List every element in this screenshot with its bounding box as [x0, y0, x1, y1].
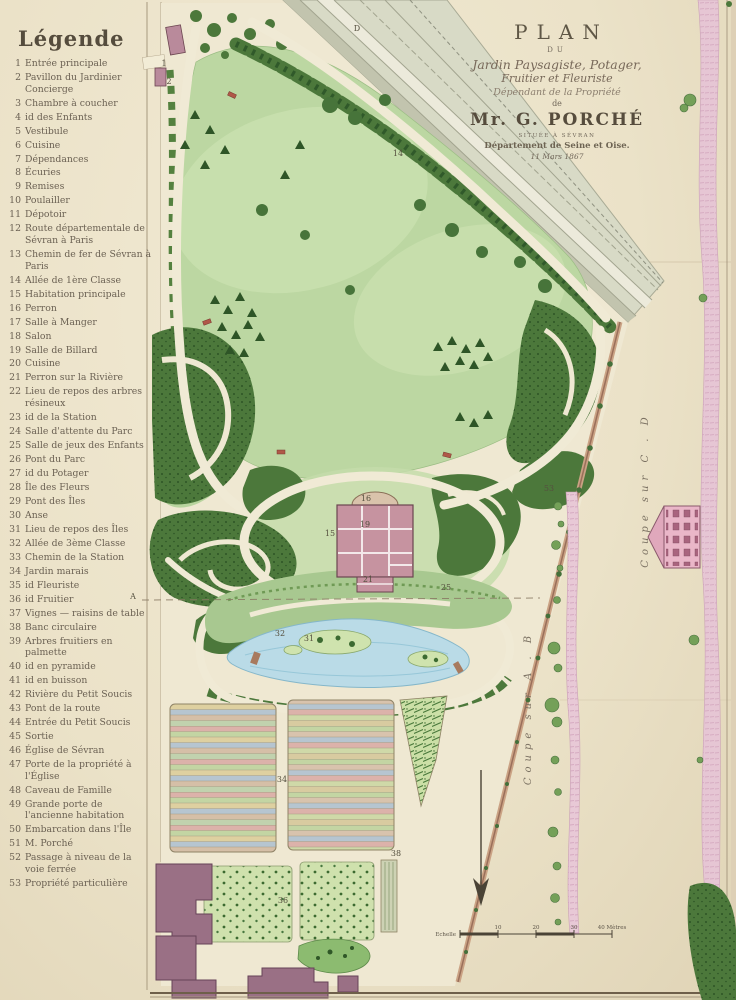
legend-item-number: 17: [6, 317, 21, 329]
legend-item: 51M. Porché: [6, 838, 152, 850]
legend-item-number: 9: [6, 181, 21, 193]
legend-item-label: Chemin de fer de Sévran à Paris: [25, 249, 152, 272]
legend-item-label: Poulailler: [25, 195, 152, 207]
legend-item-label: Pont des Îles: [25, 496, 152, 508]
legend-item: 45Sortie: [6, 731, 152, 743]
legend-item-label: Dépendances: [25, 154, 152, 166]
map-number-label: 19: [360, 520, 370, 529]
island: [408, 651, 448, 667]
legend-item-label: id Fruitier: [25, 594, 152, 606]
legend-item-label: Salle de Billard: [25, 345, 152, 357]
legend-item-label: Remises: [25, 181, 152, 193]
legend-item-label: id Fleuriste: [25, 580, 152, 592]
legend-item-label: Perron sur la Rivière: [25, 372, 152, 384]
legend-item: 9Remises: [6, 181, 152, 193]
legend-item-number: 43: [6, 703, 21, 715]
legend-item: 49Grande porte de l'ancienne habitation: [6, 799, 152, 822]
scanned-garden-plan: { "legend": { "heading": "Légende", "ite…: [0, 0, 736, 1000]
legend-item-number: 25: [6, 440, 21, 452]
legend-item: 38Banc circulaire: [6, 622, 152, 634]
legend-item: 16Perron: [6, 303, 152, 315]
legend-item-number: 39: [6, 636, 21, 659]
legend-item-label: Île des Fleurs: [25, 482, 152, 494]
legend-item: 11Dépotoir: [6, 209, 152, 221]
scale-tick-labels: 10203040 Mètres: [495, 924, 627, 931]
map-number-label: 34: [277, 775, 287, 784]
legend-item-number: 8: [6, 167, 21, 179]
kitchen-garden-plot: [288, 700, 394, 850]
legend-item-label: Église de Sévran: [25, 745, 152, 757]
map-number-label: 38: [391, 849, 401, 858]
plan-title: PLAN: [448, 20, 666, 44]
legend-item: 18Salon: [6, 331, 152, 343]
map-number-label: 32: [275, 629, 285, 638]
legend-item-number: 6: [6, 140, 21, 152]
legend-item: 15Habitation principale: [6, 289, 152, 301]
map-number-label: 15: [325, 529, 335, 538]
legend-item: 31Lieu de repos des Îles: [6, 524, 152, 536]
legend-item-number: 26: [6, 454, 21, 466]
legend-item: 35id Fleuriste: [6, 580, 152, 592]
legend-item-label: Pavillon du Jardinier Concierge: [25, 72, 152, 95]
legend-item-label: Entrée du Petit Soucis: [25, 717, 152, 729]
legend-item-label: Allée de 3ème Classe: [25, 538, 152, 550]
legend-item: 52Passage à niveau de la voie ferrée: [6, 852, 152, 875]
legend-item-label: Pont du Parc: [25, 454, 152, 466]
legend-item: 53Propriété particulière: [6, 878, 152, 890]
legend-item: 24Salle d'attente du Parc: [6, 426, 152, 438]
legend-item: 32Allée de 3ème Classe: [6, 538, 152, 550]
title-department: Département de Seine et Oise.: [448, 141, 666, 151]
legend-item-label: M. Porché: [25, 838, 152, 850]
scale-tick-label: 40 Mètres: [598, 924, 627, 931]
map-number-label: 1: [161, 59, 166, 68]
legend-item-number: 34: [6, 566, 21, 578]
legend-item-label: Chemin de la Station: [25, 552, 152, 564]
palmette-strip: [381, 860, 397, 932]
legend-item-number: 37: [6, 608, 21, 620]
legend-item-number: 24: [6, 426, 21, 438]
legend-item: 30Anse: [6, 510, 152, 522]
legend-item: 36id Fruitier: [6, 594, 152, 606]
map-number-label: 25: [441, 583, 451, 592]
legend: Légende 1Entrée principale2Pavillon du J…: [6, 26, 152, 892]
legend-item: 34Jardin marais: [6, 566, 152, 578]
legend-item-number: 36: [6, 594, 21, 606]
legend-item: 47Porte de la propriété à l'Église: [6, 759, 152, 782]
legend-item: 4id des Enfants: [6, 112, 152, 124]
legend-item: 39Arbres fruitiers en palmette: [6, 636, 152, 659]
legend-item-number: 14: [6, 275, 21, 287]
legend-item-number: 53: [6, 878, 21, 890]
legend-item-number: 42: [6, 689, 21, 701]
legend-item-label: Lieu de repos des Îles: [25, 524, 152, 536]
legend-item: 44Entrée du Petit Soucis: [6, 717, 152, 729]
legend-item: 27id du Potager: [6, 468, 152, 480]
legend-item-number: 40: [6, 661, 21, 673]
legend-item-label: Vignes — raisins de table: [25, 608, 152, 620]
legend-item-label: Salle à Manger: [25, 317, 152, 329]
legend-item-label: id des Enfants: [25, 112, 152, 124]
legend-item: 19Salle de Billard: [6, 345, 152, 357]
legend-item: 25Salle de jeux des Enfants: [6, 440, 152, 452]
legend-item-number: 46: [6, 745, 21, 757]
legend-item-number: 52: [6, 852, 21, 875]
legend-item-number: 27: [6, 468, 21, 480]
legend-item-label: id de la Station: [25, 412, 152, 424]
legend-heading: Légende: [18, 26, 152, 51]
legend-item: 41id en buisson: [6, 675, 152, 687]
map-number-label: 53: [544, 484, 554, 493]
legend-item-label: Salle d'attente du Parc: [25, 426, 152, 438]
legend-item-number: 50: [6, 824, 21, 836]
legend-item-number: 49: [6, 799, 21, 822]
legend-item-number: 30: [6, 510, 21, 522]
legend-item-number: 15: [6, 289, 21, 301]
legend-item-number: 11: [6, 209, 21, 221]
legend-item: 48Caveau de Famille: [6, 785, 152, 797]
legend-item-label: Cuisine: [25, 358, 152, 370]
legend-item-label: Jardin marais: [25, 566, 152, 578]
legend-item: 23id de la Station: [6, 412, 152, 424]
legend-item-label: Porte de la propriété à l'Église: [25, 759, 152, 782]
legend-item-label: Entrée principale: [25, 58, 152, 70]
scale-tick-label: 10: [495, 925, 502, 931]
legend-item-label: Lieu de repos des arbres résineux: [25, 386, 152, 409]
legend-item: 13Chemin de fer de Sévran à Paris: [6, 249, 152, 272]
orchard-plot: [300, 862, 374, 940]
map-number-label: 31: [304, 634, 314, 643]
title-de: de: [448, 99, 666, 108]
legend-item-label: Vestibule: [25, 126, 152, 138]
title-garden-line: Jardin Paysagiste, Potager,: [448, 57, 666, 72]
legend-item-number: 33: [6, 552, 21, 564]
legend-item-number: 4: [6, 112, 21, 124]
legend-item-number: 29: [6, 496, 21, 508]
title-block: PLAN DU Jardin Paysagiste, Potager, Frui…: [448, 20, 666, 161]
legend-item: 5Vestibule: [6, 126, 152, 138]
legend-item: 37Vignes — raisins de table: [6, 608, 152, 620]
legend-item-number: 10: [6, 195, 21, 207]
legend-item: 21Perron sur la Rivière: [6, 372, 152, 384]
legend-item-number: 38: [6, 622, 21, 634]
legend-item-number: 23: [6, 412, 21, 424]
legend-item-number: 12: [6, 223, 21, 246]
legend-item: 6Cuisine: [6, 140, 152, 152]
legend-item-label: Grande porte de l'ancienne habitation: [25, 799, 152, 822]
legend-item-number: 5: [6, 126, 21, 138]
title-fruit-line: Fruitier et Fleuriste: [448, 72, 666, 85]
legend-item: 7Dépendances: [6, 154, 152, 166]
legend-item-number: 28: [6, 482, 21, 494]
title-date: 11 Mars 1867: [448, 152, 666, 161]
scale-tick-label: 20: [533, 925, 540, 931]
legend-item-number: 3: [6, 98, 21, 110]
islet: [284, 646, 302, 655]
legend-item-label: Salle de jeux des Enfants: [25, 440, 152, 452]
legend-item: 26Pont du Parc: [6, 454, 152, 466]
legend-item: 28Île des Fleurs: [6, 482, 152, 494]
map-number-label: 36: [278, 896, 288, 905]
legend-item-number: 45: [6, 731, 21, 743]
bottom-road: [150, 993, 736, 997]
legend-item-number: 48: [6, 785, 21, 797]
legend-item: 29Pont des Îles: [6, 496, 152, 508]
legend-item: 14Allée de 1ère Classe: [6, 275, 152, 287]
legend-item-number: 41: [6, 675, 21, 687]
legend-item-number: 31: [6, 524, 21, 536]
legend-item-label: Pont de la route: [25, 703, 152, 715]
legend-item-label: Écuries: [25, 167, 152, 179]
legend-item: 12Route départementale de Sévran à Paris: [6, 223, 152, 246]
legend-item-number: 21: [6, 372, 21, 384]
map-number-label: 2: [166, 77, 171, 86]
main-house: [337, 492, 413, 592]
legend-item-label: id en pyramide: [25, 661, 152, 673]
legend-item-label: id en buisson: [25, 675, 152, 687]
legend-item: 20Cuisine: [6, 358, 152, 370]
legend-item-number: 2: [6, 72, 21, 95]
legend-item: 17Salle à Manger: [6, 317, 152, 329]
legend-item-label: Cuisine: [25, 140, 152, 152]
map-number-label: 16: [361, 494, 371, 503]
legend-item: 33Chemin de la Station: [6, 552, 152, 564]
legend-item-label: Rivière du Petit Soucis: [25, 689, 152, 701]
section-cd-label: Coupe sur C . D: [640, 412, 651, 567]
legend-item: 1Entrée principale: [6, 58, 152, 70]
legend-item-label: Passage à niveau de la voie ferrée: [25, 852, 152, 875]
legend-item: 10Poulailler: [6, 195, 152, 207]
legend-item-number: 35: [6, 580, 21, 592]
legend-item-label: id du Potager: [25, 468, 152, 480]
plan-title-du: DU: [448, 46, 666, 54]
map-number-label: D: [354, 24, 360, 33]
legend-item-label: Perron: [25, 303, 152, 315]
legend-item-number: 22: [6, 386, 21, 409]
legend-item: 22Lieu de repos des arbres résineux: [6, 386, 152, 409]
legend-item: 46Église de Sévran: [6, 745, 152, 757]
legend-item-label: Embarcation dans l'Île: [25, 824, 152, 836]
title-depend-line: Dépendant de la Propriété: [448, 87, 666, 98]
legend-item-number: 19: [6, 345, 21, 357]
legend-item-number: 20: [6, 358, 21, 370]
legend-item-label: Caveau de Famille: [25, 785, 152, 797]
legend-item: 43Pont de la route: [6, 703, 152, 715]
legend-item-label: Salon: [25, 331, 152, 343]
legend-item: 2Pavillon du Jardinier Concierge: [6, 72, 152, 95]
legend-item-label: Route départementale de Sévran à Paris: [25, 223, 152, 246]
map-number-label: 21: [363, 575, 373, 584]
legend-item-number: 32: [6, 538, 21, 550]
section-ab-label: Coupe sur A . B: [523, 631, 534, 785]
legend-item-number: 13: [6, 249, 21, 272]
legend-item: 42Rivière du Petit Soucis: [6, 689, 152, 701]
house-elevation: [648, 506, 700, 568]
legend-item-label: Arbres fruitiers en palmette: [25, 636, 152, 659]
legend-item-number: 1: [6, 58, 21, 70]
legend-item-number: 51: [6, 838, 21, 850]
legend-item: 3Chambre à coucher: [6, 98, 152, 110]
kitchen-garden-plot: [170, 704, 276, 852]
map-number-label: 14: [393, 149, 403, 158]
scale-tick-label: 30: [571, 925, 578, 931]
legend-item-label: Chambre à coucher: [25, 98, 152, 110]
legend-item: 50Embarcation dans l'Île: [6, 824, 152, 836]
legend-item-number: 7: [6, 154, 21, 166]
title-situated: SITUÉE À SÉVRAN: [448, 133, 666, 139]
legend-item: 40id en pyramide: [6, 661, 152, 673]
legend-item-label: Dépotoir: [25, 209, 152, 221]
legend-list: 1Entrée principale2Pavillon du Jardinier…: [6, 58, 152, 890]
legend-item-label: Habitation principale: [25, 289, 152, 301]
owner-name: Mr. G. PORCHÉ: [448, 110, 666, 130]
legend-item-label: Sortie: [25, 731, 152, 743]
legend-item-label: Propriété particulière: [25, 878, 152, 890]
legend-item-number: 47: [6, 759, 21, 782]
legend-item-label: Banc circulaire: [25, 622, 152, 634]
legend-item: 8Écuries: [6, 167, 152, 179]
legend-item-label: Allée de 1ère Classe: [25, 275, 152, 287]
legend-item-number: 44: [6, 717, 21, 729]
legend-item-number: 18: [6, 331, 21, 343]
scale-label: Echelle: [435, 932, 456, 938]
legend-item-number: 16: [6, 303, 21, 315]
legend-item-label: Anse: [25, 510, 152, 522]
